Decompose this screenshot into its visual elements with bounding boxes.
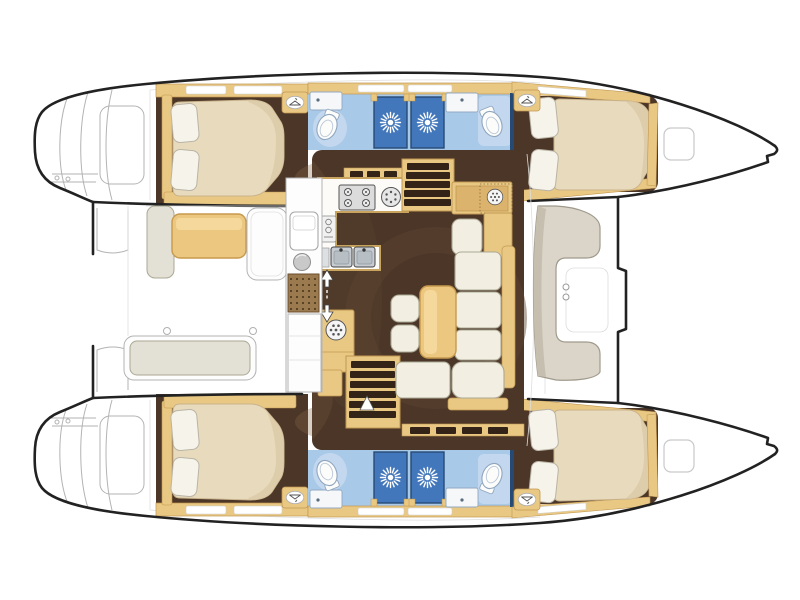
salon-table-group [391, 286, 456, 358]
aft-bench-cushion [130, 341, 250, 375]
port-companionway-stairs [402, 159, 454, 211]
cup-holder [563, 294, 569, 300]
front-cross-beam [618, 197, 626, 403]
cockpit-side-cushion [147, 206, 174, 278]
settee-back-band [448, 398, 508, 410]
settee-cushion [396, 362, 450, 398]
catamaran-deck-plan [0, 0, 800, 600]
wet-bar-module [290, 212, 318, 250]
cup-holder [563, 284, 569, 290]
stool [391, 295, 419, 322]
mooring-ring [250, 328, 257, 335]
round-hob [382, 188, 401, 207]
oven-module [321, 216, 336, 242]
wet-bar-panel [288, 314, 321, 392]
appliance-dial [326, 320, 346, 340]
settee-cushion [455, 330, 501, 360]
boat [35, 73, 777, 527]
stool [391, 325, 419, 352]
nav-instrument [487, 189, 503, 205]
wet-bar-sink [294, 254, 311, 271]
faucet [362, 248, 365, 251]
nav-seat [452, 219, 482, 255]
wet-bar-strip [286, 178, 322, 392]
settee-cushion [455, 292, 501, 328]
mooring-ring [164, 328, 171, 335]
settee-corner-cushion [452, 362, 504, 398]
aft-cockpit [124, 178, 322, 392]
cockpit-locker-panel [247, 208, 287, 280]
table-highlight [176, 218, 242, 230]
stove-4-burner [339, 185, 375, 210]
settee-back-band [502, 246, 515, 388]
faucet [339, 248, 342, 251]
salon [312, 150, 524, 450]
doormat [288, 274, 319, 312]
starboard-companionway-stairs [346, 356, 400, 428]
deck-seam [566, 268, 608, 332]
table-highlight [424, 290, 437, 354]
settee-cushion [455, 252, 501, 290]
